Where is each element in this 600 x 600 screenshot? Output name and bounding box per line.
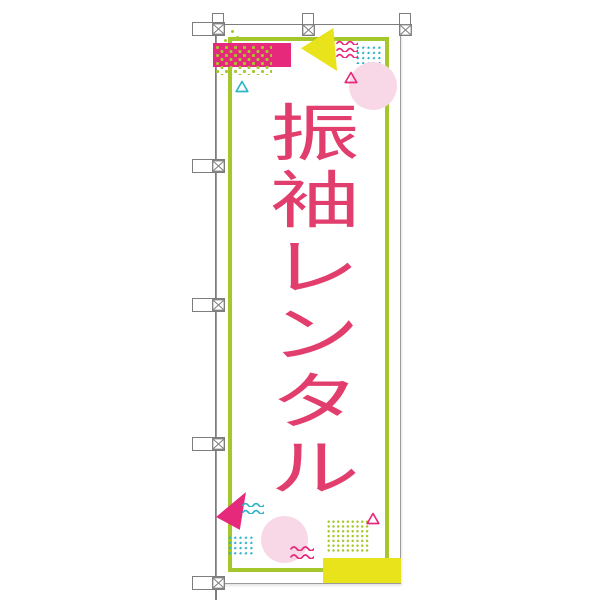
pole-tab-top-center [302, 13, 314, 36]
banner-char: タ [269, 370, 362, 437]
pink-triangle-outline-icon [366, 512, 380, 525]
pole-tab-left-4 [192, 437, 225, 451]
magenta-wave-lines-icon [290, 544, 314, 559]
stitch-x-icon [302, 24, 315, 36]
teal-dots-pattern-bottom-left [228, 536, 254, 555]
pole-tab-left-2 [192, 159, 225, 173]
banner-char: ル [269, 437, 362, 504]
green-dot [236, 36, 239, 39]
yellow-rectangle-decoration [323, 558, 401, 583]
pole-tab-top-right [399, 13, 411, 36]
stitch-x-icon [212, 577, 225, 589]
banner-text: 振 袖 レ ン タ ル [269, 102, 362, 504]
green-dot [231, 30, 234, 33]
banner-char: 振 [269, 102, 362, 169]
stitch-x-icon [399, 24, 412, 36]
banner-char: 袖 [269, 169, 362, 236]
teal-triangle-outline-icon [235, 80, 249, 93]
pole-tab-left-1 [192, 22, 225, 36]
pole-tab-left-5 [192, 576, 225, 590]
stitch-x-icon [212, 299, 225, 311]
green-dots-pattern-top-left [215, 45, 272, 75]
pink-triangle-outline-icon [344, 71, 358, 84]
magenta-wave-lines-icon [336, 39, 358, 59]
stitch-x-icon [212, 438, 225, 450]
stitch-x-icon [212, 23, 225, 35]
green-dot [224, 39, 227, 42]
pole-tab-left-3 [192, 298, 225, 312]
banner-char: レ [269, 236, 362, 303]
green-dots-pattern-bottom-right [327, 520, 370, 554]
banner-char: ン [269, 303, 362, 370]
nobori-product-image: 振 袖 レ ン タ ル [0, 0, 600, 600]
teal-wave-lines-icon [242, 501, 264, 514]
stitch-x-icon [212, 160, 225, 172]
